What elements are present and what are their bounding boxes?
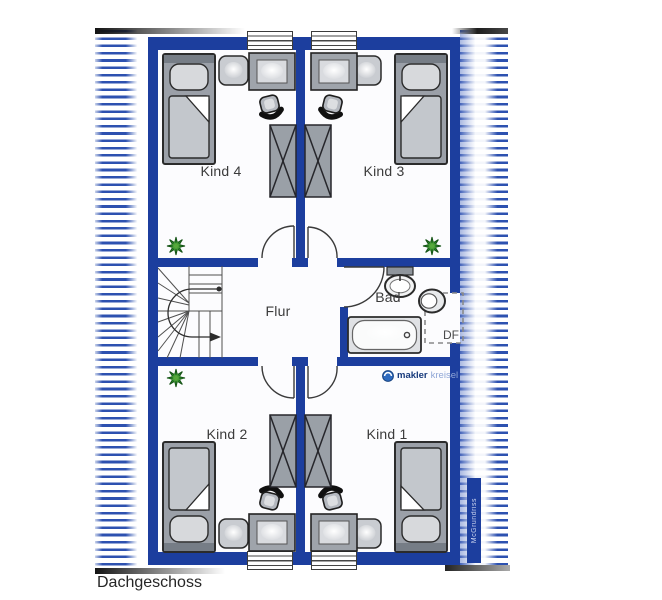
desk-chair-icon [258, 486, 282, 511]
room-label-bad: Bad [375, 289, 401, 305]
logo-text-bold: makler [397, 371, 428, 381]
roof-window-label: DF [443, 328, 459, 342]
floor-plan: Kind 4 Kind 3 Flur Bad Kind 2 Kind 1 DF … [0, 0, 662, 600]
mcgrundriss-watermark: McGrundriss [467, 478, 481, 563]
floor-title: Dachgeschoss [97, 574, 202, 592]
bed-icon [395, 54, 447, 164]
stair-walk-line [168, 287, 222, 342]
bed-icon [395, 442, 447, 552]
nightstand-icon [219, 56, 381, 548]
plant-icon [423, 237, 441, 255]
room-label-kind2: Kind 2 [207, 426, 248, 442]
logo-text-light: kreisel [431, 371, 458, 381]
plant-icon [167, 237, 185, 255]
bed-icon [163, 54, 215, 164]
room-label-kind3: Kind 3 [364, 163, 405, 179]
plan-graphics [0, 0, 662, 600]
toilet-icon [419, 290, 445, 313]
plant-icon [167, 369, 185, 387]
desk-chair-icon [320, 94, 344, 119]
maklerkreisel-logo: maklerkreisel [382, 370, 458, 382]
desk-chair-icon [258, 94, 282, 119]
bed-icon [163, 442, 215, 552]
bathtub-icon [348, 317, 421, 353]
desk-icon [249, 53, 357, 551]
desk-chair-icon [320, 486, 344, 511]
room-label-flur: Flur [266, 303, 291, 319]
logo-globe-icon [382, 370, 394, 382]
watermark-text: McGrundriss [471, 498, 478, 543]
room-label-kind4: Kind 4 [201, 163, 242, 179]
room-label-kind1: Kind 1 [367, 426, 408, 442]
